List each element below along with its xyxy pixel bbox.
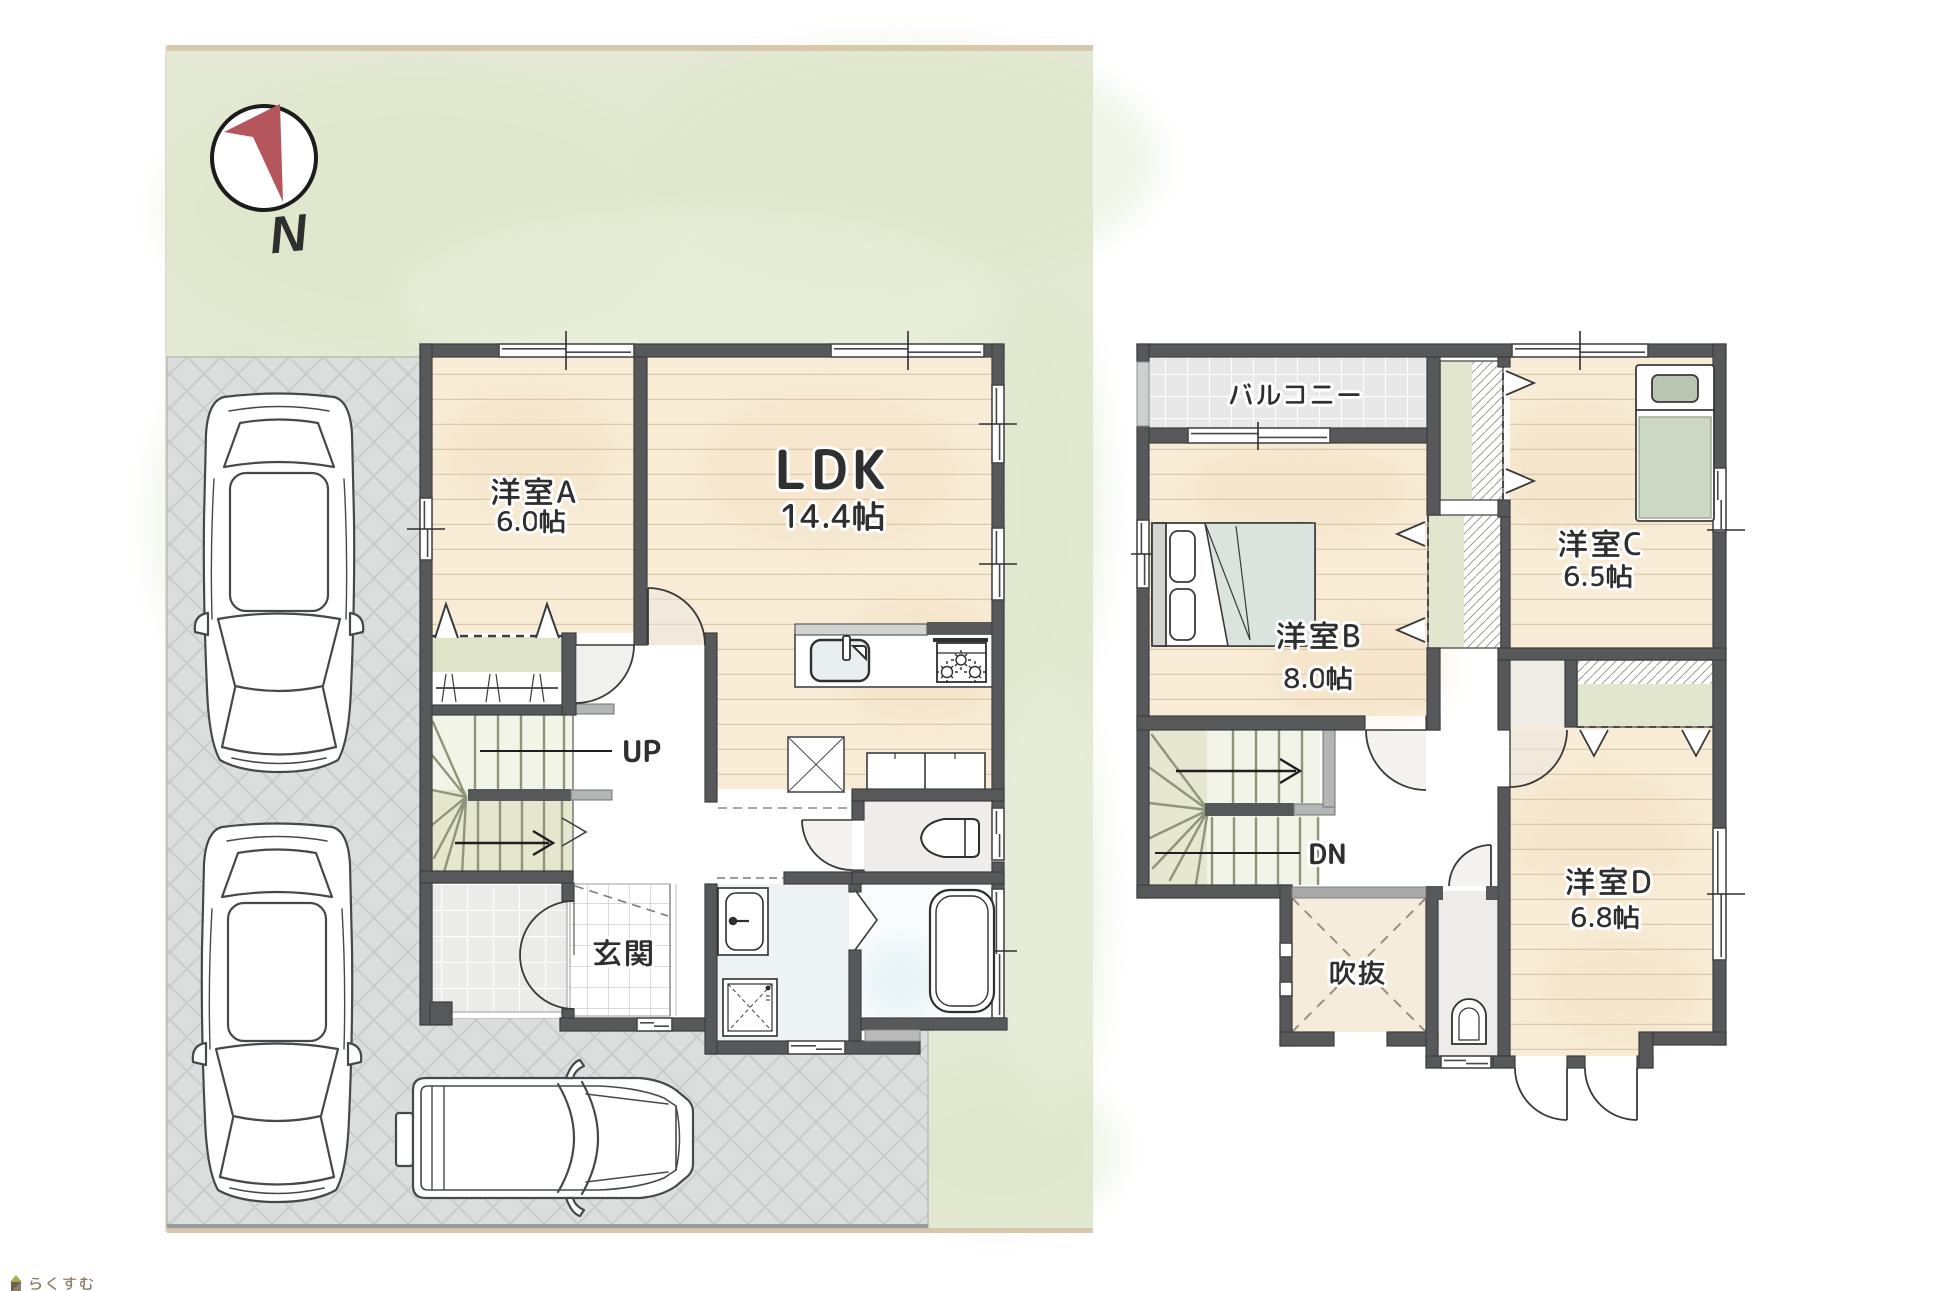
svg-text:N: N <box>267 204 312 266</box>
